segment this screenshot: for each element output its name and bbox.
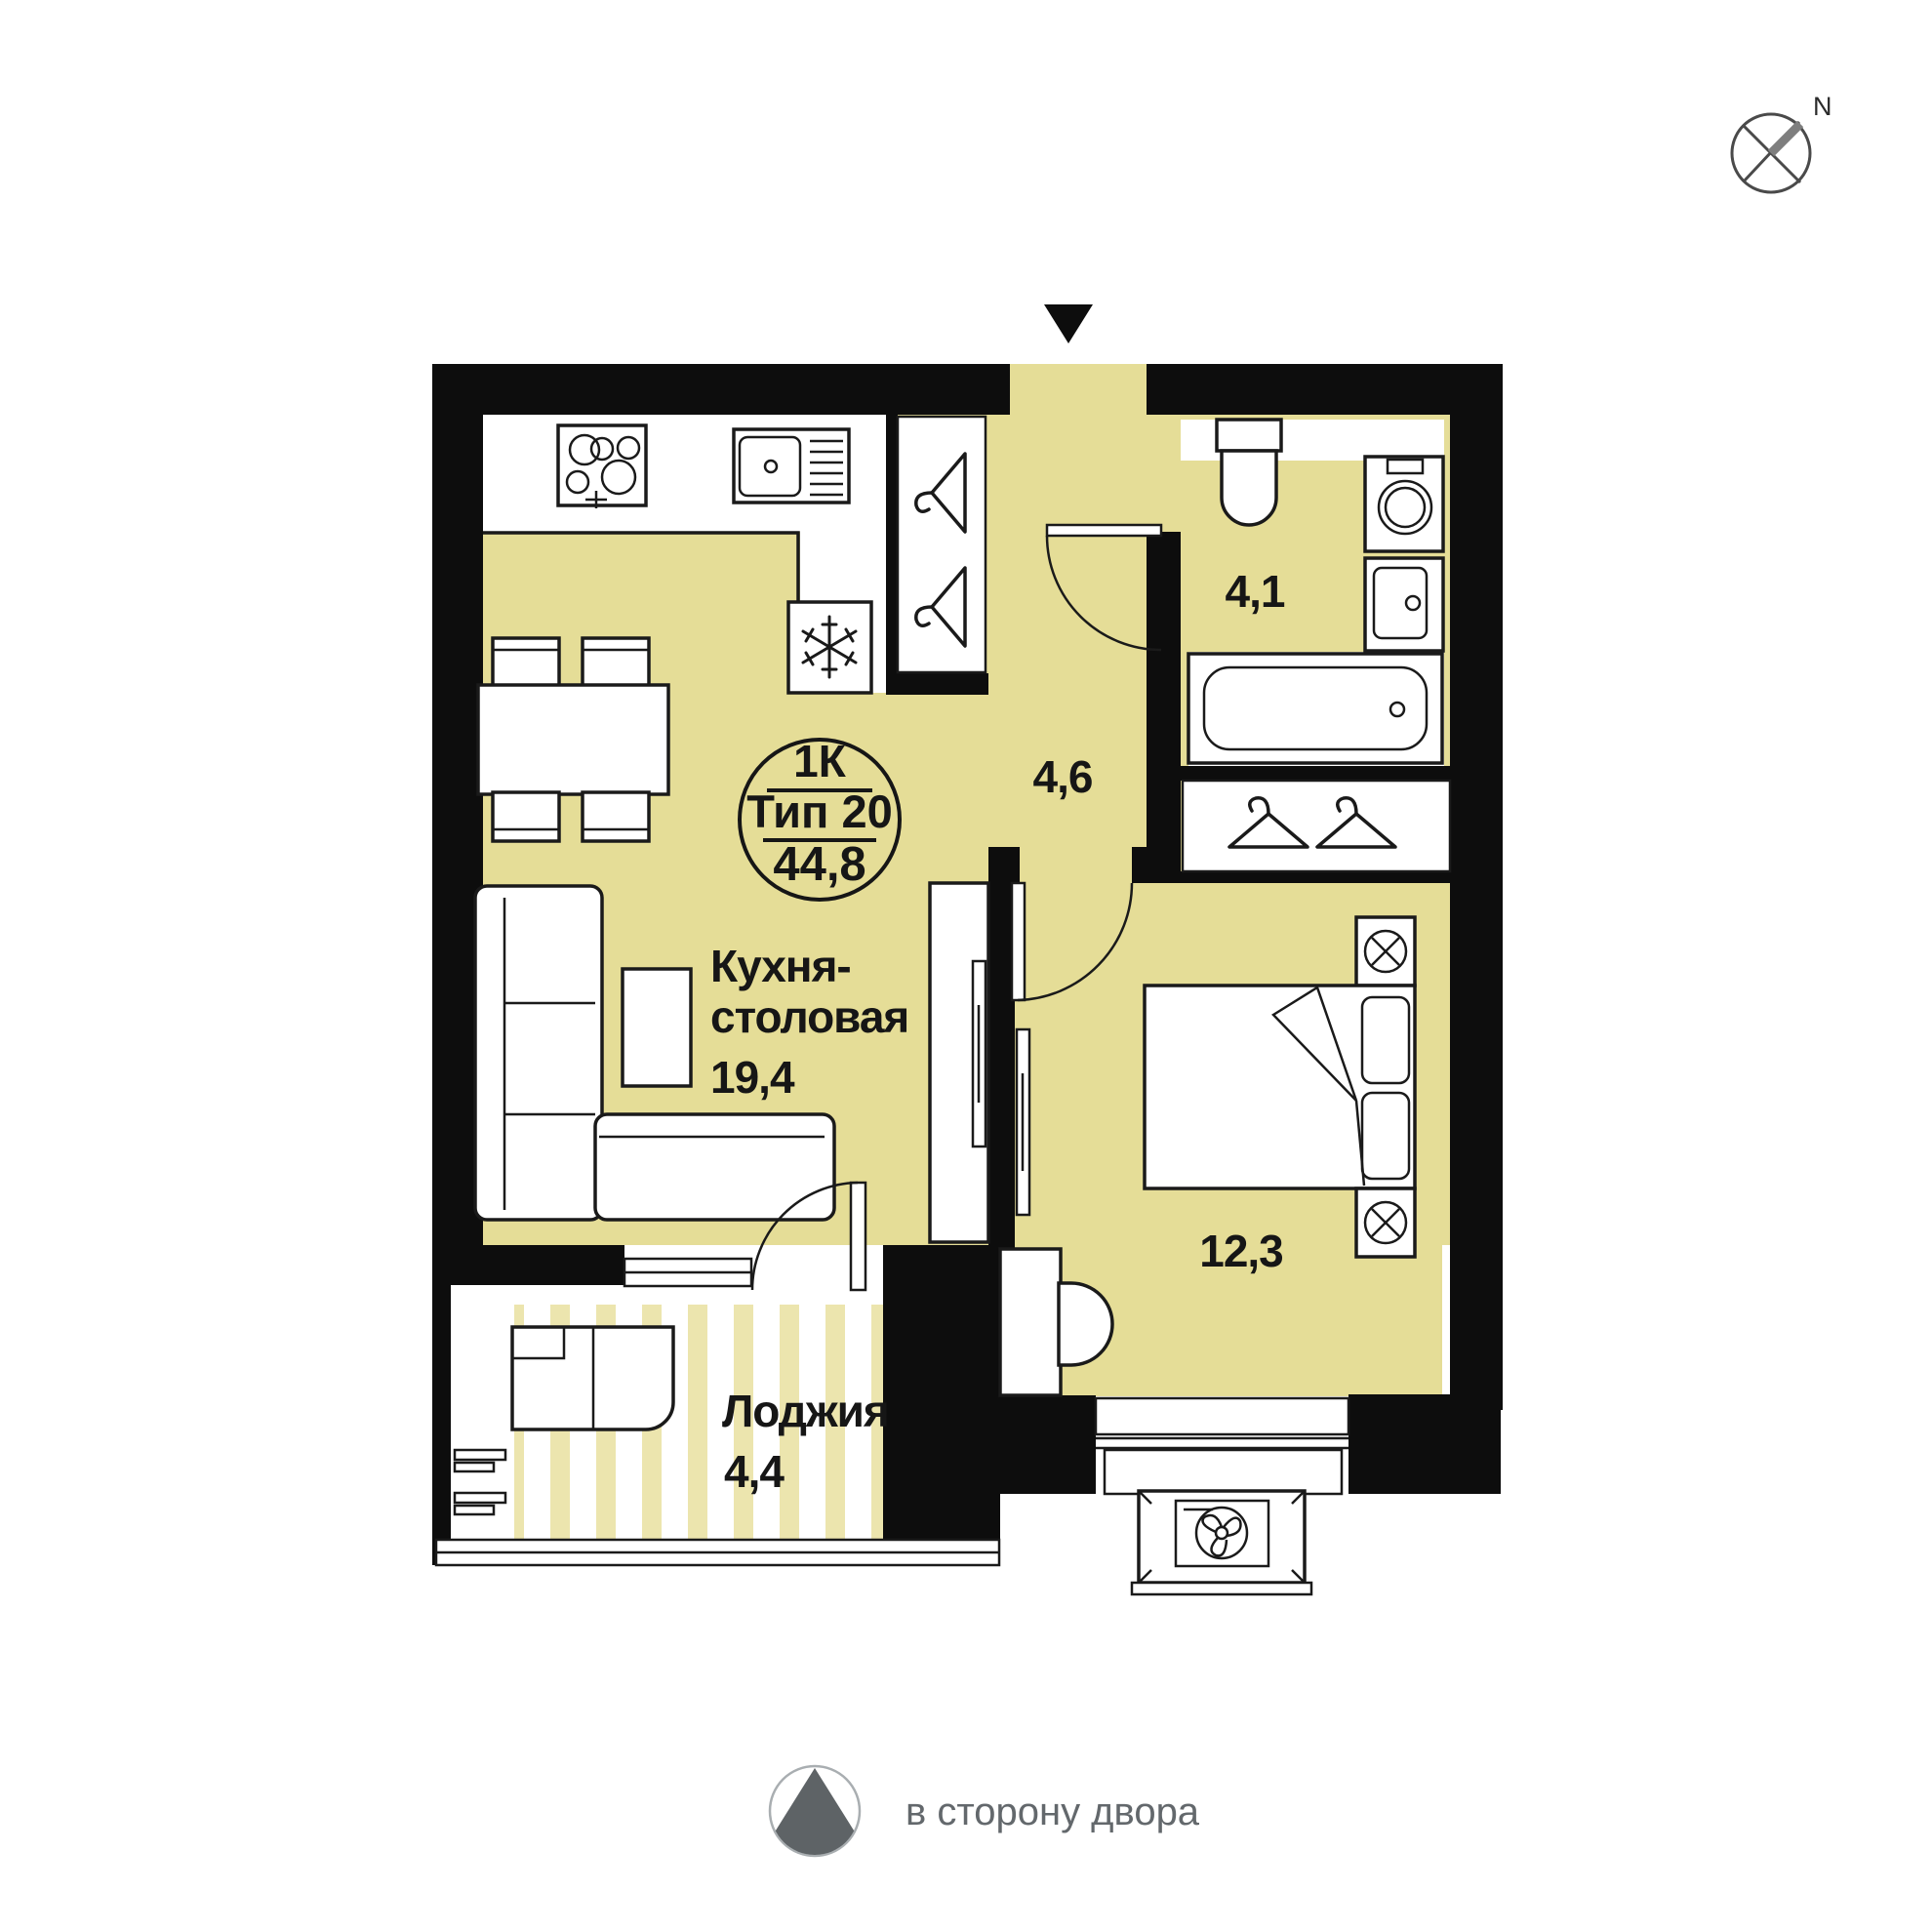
tv-panel-kitchen-icon bbox=[973, 961, 986, 1147]
loggia-label: Лоджия bbox=[722, 1386, 889, 1436]
wall-bottom-right-block bbox=[1348, 1394, 1501, 1494]
washing-machine-icon bbox=[1365, 457, 1443, 551]
wall-below-bedroom-left bbox=[1000, 1395, 1096, 1494]
kitchen-label-line1: Кухня- bbox=[710, 941, 851, 991]
pillow bbox=[1362, 997, 1409, 1083]
courtyard-legend-text: в сторону двора bbox=[906, 1791, 1200, 1833]
wall-closet-left bbox=[886, 415, 898, 695]
dining-chair bbox=[583, 638, 649, 687]
wall-top-right bbox=[1147, 364, 1503, 415]
badge-type: Тип 20 bbox=[746, 785, 893, 837]
tv-panel-bedroom-icon bbox=[1017, 1029, 1029, 1215]
kitchen-area-label: 19,4 bbox=[710, 1052, 795, 1103]
bedroom-area-label: 12,3 bbox=[1199, 1226, 1283, 1276]
bathroom-sink-icon bbox=[1365, 558, 1443, 651]
nightstand bbox=[1356, 1188, 1415, 1257]
loggia-glazing bbox=[436, 1540, 999, 1565]
wall-wardrobe-bottom bbox=[1181, 871, 1452, 883]
wardrobe-strip bbox=[1183, 781, 1450, 871]
floorplan-page: 1К Тип 20 44,8 Кухня- столовая 19,4 4,6 … bbox=[0, 0, 1932, 1932]
bathtub-icon bbox=[1188, 654, 1442, 763]
loggia-area-label: 4,4 bbox=[724, 1446, 785, 1497]
compass-north-label: N bbox=[1813, 92, 1832, 121]
sofa-chaise-section bbox=[595, 1114, 834, 1220]
sofa-left-section bbox=[475, 886, 602, 1220]
compass: N bbox=[1732, 92, 1832, 192]
wall-top-left bbox=[432, 364, 1010, 415]
kitchen-label-line2: столовая bbox=[710, 991, 908, 1042]
badge-area: 44,8 bbox=[773, 838, 865, 891]
entrance-arrow-icon bbox=[1044, 304, 1093, 343]
entry-closet bbox=[898, 417, 986, 672]
dining-chair bbox=[493, 792, 559, 841]
desk bbox=[1000, 1249, 1061, 1395]
dining-chair bbox=[493, 638, 559, 687]
ac-unit bbox=[1132, 1491, 1311, 1594]
wall-bathroom-bottom bbox=[1181, 766, 1452, 781]
coffee-table bbox=[623, 969, 691, 1086]
unit-badge: 1К Тип 20 44,8 bbox=[740, 736, 900, 900]
wall-kitchen-bottom bbox=[432, 1245, 624, 1285]
wardrobe-box bbox=[1183, 781, 1450, 871]
badge-rooms: 1К bbox=[793, 736, 847, 786]
floor-entry-gap bbox=[1010, 364, 1147, 415]
wall-right bbox=[1450, 415, 1503, 1410]
dining-chair bbox=[583, 792, 649, 841]
nightstand bbox=[1356, 917, 1415, 986]
wall-loggia-right-pier bbox=[883, 1245, 1000, 1551]
bedroom-window bbox=[1096, 1398, 1348, 1494]
wall-loggia-left bbox=[432, 1285, 451, 1565]
wall-bedroom-door-pier-left bbox=[988, 847, 1020, 883]
toilet-icon bbox=[1217, 420, 1281, 525]
wall-bathroom-left bbox=[1147, 532, 1181, 883]
dining-table bbox=[478, 685, 668, 794]
courtyard-legend: в сторону двора bbox=[759, 1766, 1200, 1857]
floorplan-drawing: 1К Тип 20 44,8 Кухня- столовая 19,4 4,6 … bbox=[0, 0, 1932, 1932]
pillow bbox=[1362, 1093, 1409, 1179]
hall-area-label: 4,6 bbox=[1033, 751, 1093, 802]
entry-closet-box bbox=[898, 417, 986, 672]
wall-closet-bottom bbox=[886, 673, 988, 695]
kitchen-loggia-window bbox=[624, 1259, 751, 1286]
bathroom-area-label: 4,1 bbox=[1226, 566, 1285, 617]
